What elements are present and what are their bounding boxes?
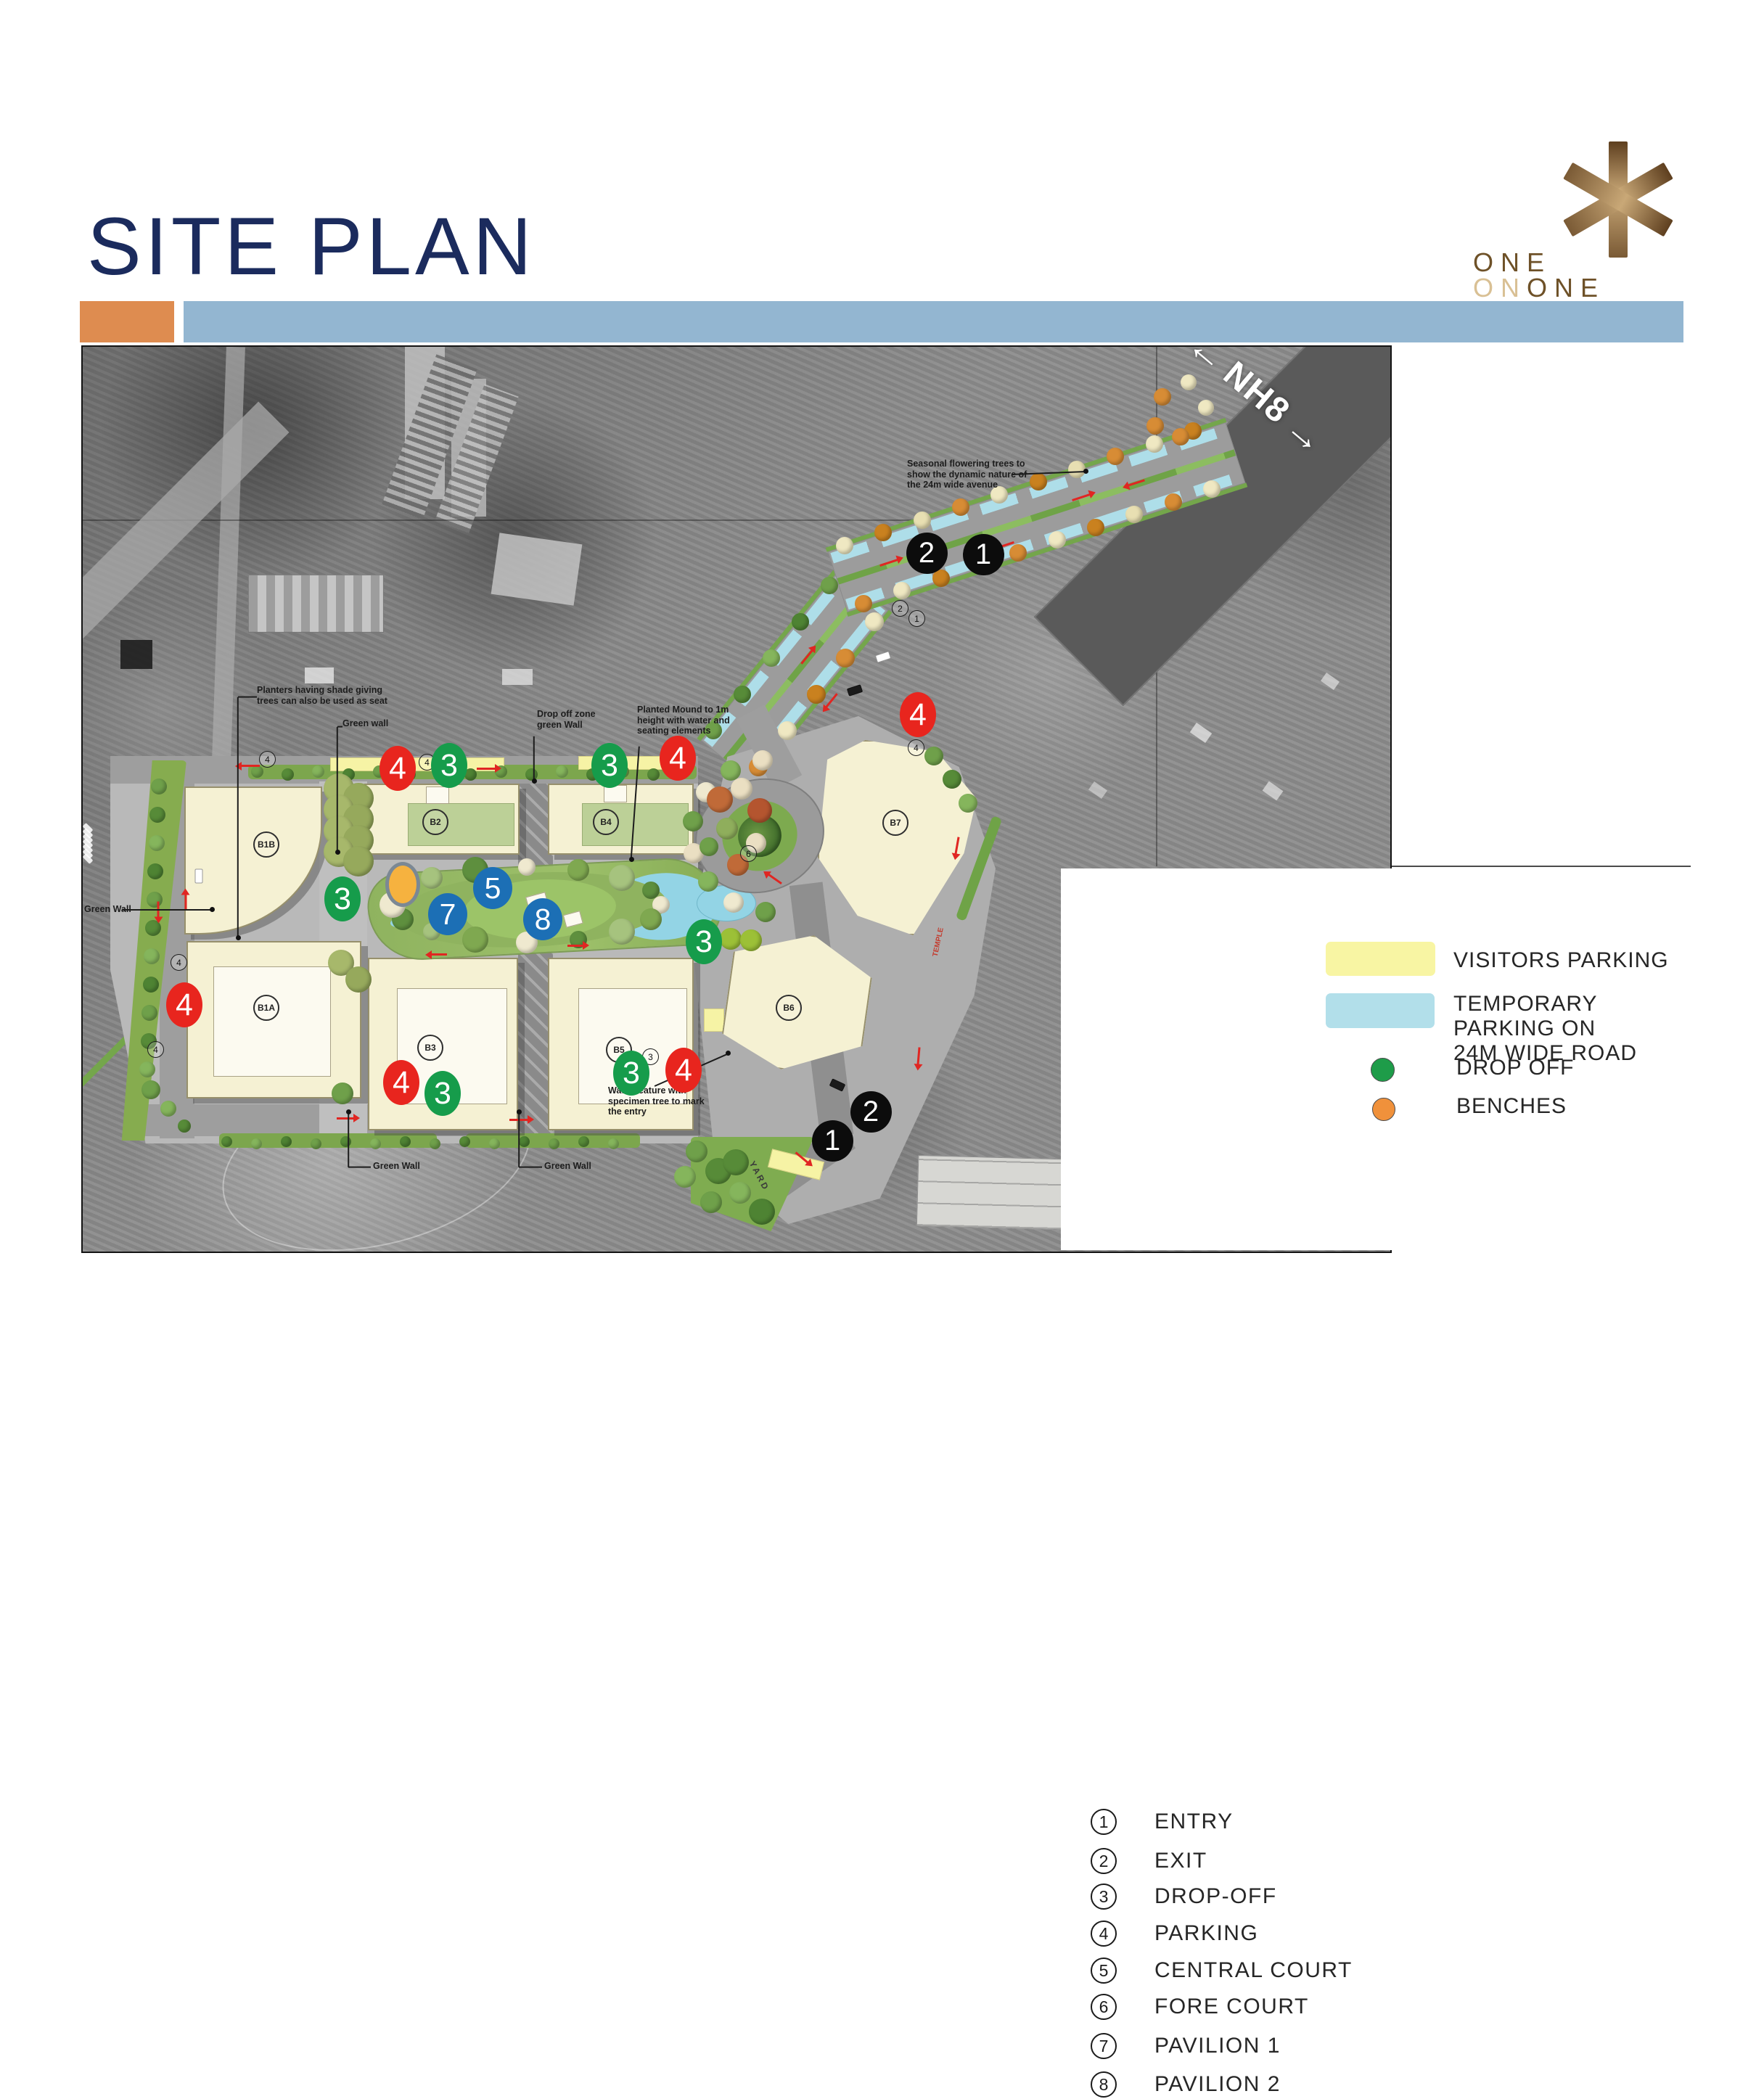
logo-word-onone: ONONE <box>1473 273 1605 303</box>
tree-icon <box>608 1138 619 1149</box>
bench-marker-icon <box>385 862 420 907</box>
direction-arrow-icon <box>477 768 496 770</box>
tree-icon <box>914 512 931 529</box>
tree-icon <box>1087 519 1104 536</box>
small-ref-4: 4 <box>147 1041 164 1058</box>
tree-icon <box>1146 417 1164 435</box>
building-label-B1B: B1B <box>253 831 279 858</box>
direction-arrow-icon <box>241 765 260 767</box>
small-ref-4: 4 <box>908 739 924 756</box>
map-marker-black-2: 2 <box>906 533 948 574</box>
building-B1A-roof <box>213 966 331 1077</box>
tree-icon <box>700 837 718 856</box>
tree-icon <box>549 1138 559 1149</box>
legend-item-entry: 1 ENTRY <box>1091 1807 1234 1836</box>
leader-line <box>237 697 239 937</box>
tree-icon <box>251 765 263 778</box>
legend-panel: 1 ENTRY 2 EXIT 3 DROP-OFF 4 PARKING 5 CE… <box>1061 868 1691 1250</box>
tree-icon <box>489 1138 500 1149</box>
tree-icon <box>160 1101 176 1117</box>
tree-icon <box>747 798 772 823</box>
map-marker-red-4: 4 <box>383 1060 419 1105</box>
tree-icon <box>647 768 660 781</box>
building-B2-roofbit <box>426 786 449 804</box>
tree-icon <box>151 779 167 794</box>
tree-icon <box>1068 461 1086 478</box>
legend-label-central-court: CENTRAL COURT <box>1154 1958 1353 1983</box>
tree-icon <box>1172 428 1189 445</box>
tree-icon <box>343 846 374 876</box>
leader-dot <box>346 1109 351 1114</box>
tree-icon <box>567 859 589 881</box>
map-annotation-green-wall-bottom-1: Green Wall <box>373 1161 442 1172</box>
temporary-parking-label: TEMPORARY PARKING ON 24M WIDE ROAD <box>1453 992 1691 1066</box>
legend-divider-line <box>1392 866 1691 867</box>
map-marker-green-3: 3 <box>613 1051 649 1096</box>
tree-icon <box>807 685 826 704</box>
tree-icon <box>749 1199 775 1225</box>
map-annotation-planted-mound: Planted Mound to 1m height with water an… <box>637 705 764 736</box>
tree-icon <box>723 1149 749 1175</box>
leader-line <box>348 1167 371 1168</box>
tree-icon <box>1154 388 1171 406</box>
tree-icon <box>578 1136 589 1147</box>
leader-line <box>533 736 535 780</box>
tree-icon <box>1049 531 1066 549</box>
legend-label-pavilion-1: PAVILION 1 <box>1154 2034 1281 2058</box>
building-label-B3: B3 <box>417 1035 443 1061</box>
building-label-B7: B7 <box>882 810 908 836</box>
direction-arrow-icon <box>567 945 583 947</box>
tree-icon <box>139 1061 155 1077</box>
tree-icon <box>855 595 872 612</box>
accent-bar-orange <box>80 301 174 342</box>
drop-off-dot-swatch <box>1371 1058 1395 1082</box>
legend-number-7: 7 <box>1091 2033 1117 2059</box>
map-marker-red-4: 4 <box>665 1048 702 1093</box>
tree-icon <box>792 613 809 630</box>
tree-icon <box>763 649 780 667</box>
direction-arrow-icon <box>431 953 447 956</box>
tree-icon <box>836 649 855 668</box>
temporary-parking-swatch <box>1326 993 1435 1028</box>
legend-item-fore-court: 6 FORE COURT <box>1091 1992 1309 2021</box>
legend-item-pavilion-1: 7 PAVILION 1 <box>1091 2032 1281 2061</box>
legend-item-pavilion-2: 8 PAVILION 2 <box>1091 2070 1281 2099</box>
tree-icon <box>755 902 776 922</box>
legend-item-central-court: 5 CENTRAL COURT <box>1091 1956 1353 1985</box>
photo-structure <box>502 669 533 685</box>
legend-label-drop-off: DROP-OFF <box>1154 1884 1277 1909</box>
tree-icon <box>924 747 943 765</box>
tree-icon <box>707 786 733 813</box>
tree-icon <box>370 1138 381 1149</box>
page-title: SITE PLAN <box>87 206 536 287</box>
map-marker-blue-8: 8 <box>523 898 562 940</box>
legend-label-pavilion-2: PAVILION 2 <box>1154 2072 1281 2097</box>
tree-icon <box>752 750 773 771</box>
small-ref-6: 6 <box>740 845 757 862</box>
direction-arrow-icon <box>337 1117 354 1120</box>
small-ref-2: 2 <box>892 600 908 617</box>
tree-icon <box>640 908 662 930</box>
legend-label-exit: EXIT <box>1154 1849 1207 1873</box>
legend-number-5: 5 <box>1091 1958 1117 1984</box>
leader-line <box>348 1114 349 1167</box>
tree-icon <box>282 768 294 781</box>
tree-icon <box>865 612 884 631</box>
tree-icon <box>720 928 742 950</box>
tree-icon <box>430 1138 440 1149</box>
tree-icon <box>674 1166 696 1188</box>
tree-icon <box>959 794 977 813</box>
map-annotation-green-wall-top: Green wall <box>342 718 411 729</box>
tree-icon <box>698 871 718 892</box>
tree-icon <box>178 1120 191 1133</box>
map-marker-black-1: 1 <box>963 534 1004 575</box>
tree-icon <box>1181 374 1197 390</box>
tree-icon <box>462 927 488 953</box>
tree-icon <box>642 882 660 899</box>
leader-dot <box>335 850 340 855</box>
tree-icon <box>943 770 961 789</box>
building-label-B6: B6 <box>776 995 802 1021</box>
building-label-B4: B4 <box>593 809 619 835</box>
tree-icon <box>281 1136 292 1147</box>
tree-icon <box>716 818 738 839</box>
map-marker-green-3: 3 <box>431 743 467 788</box>
tree-icon <box>519 1136 530 1147</box>
map-marker-red-4: 4 <box>660 736 696 781</box>
building-label-B1A: B1A <box>253 995 279 1021</box>
tree-icon <box>459 1136 470 1147</box>
small-ref-1: 1 <box>908 610 925 627</box>
map-annotation-planters-note: Planters having shade giving trees can a… <box>257 685 424 706</box>
small-ref-4: 4 <box>171 954 187 971</box>
map-annotation-seasonal-trees: Seasonal flowering trees to show the dyn… <box>907 459 1052 490</box>
leader-dot <box>210 907 215 912</box>
logo-word-one2: ONE <box>1527 273 1605 303</box>
tree-icon <box>556 765 568 778</box>
tree-icon <box>340 1136 351 1147</box>
tree-icon <box>311 1138 321 1149</box>
small-ref-4: 4 <box>259 751 276 768</box>
tree-icon <box>729 1182 751 1204</box>
tree-icon <box>734 686 751 703</box>
legend-item-drop-off: 3 DROP-OFF <box>1091 1882 1277 1911</box>
tree-icon <box>609 865 635 891</box>
leader-dot <box>236 935 241 940</box>
tree-icon <box>836 537 853 554</box>
tree-icon <box>686 1141 707 1162</box>
legend-number-8: 8 <box>1091 2071 1117 2098</box>
map-marker-red-4: 4 <box>166 982 202 1027</box>
tree-icon <box>312 765 324 778</box>
tree-icon <box>518 858 536 876</box>
tree-icon <box>778 721 797 740</box>
car-icon <box>195 869 203 884</box>
visitors-parking-label: VISITORS PARKING <box>1453 948 1669 973</box>
tree-icon <box>1203 480 1221 498</box>
map-marker-green-3: 3 <box>591 743 628 788</box>
legend-number-3: 3 <box>1091 1884 1117 1910</box>
tree-icon <box>1198 400 1214 416</box>
legend-number-4: 4 <box>1091 1921 1117 1947</box>
visitors-parking-strip <box>704 1009 724 1032</box>
tree-icon <box>731 778 752 800</box>
one-on-one-logo: ONE ONONE <box>1459 141 1698 330</box>
photo-structure <box>491 533 583 605</box>
tree-icon <box>700 1191 722 1213</box>
photo-structure <box>305 668 334 683</box>
building-label-B2: B2 <box>422 809 448 835</box>
legend-number-2: 2 <box>1091 1848 1117 1874</box>
tree-icon <box>251 1138 262 1149</box>
map-annotation-green-wall-bottom-2: Green Wall <box>544 1161 613 1172</box>
logo-word-on: ON <box>1473 273 1527 303</box>
tree-icon <box>740 929 762 951</box>
map-marker-green-3: 3 <box>686 919 722 964</box>
leader-dot <box>1083 469 1088 474</box>
tree-icon <box>149 835 165 851</box>
drop-off-label: DROP OFF <box>1456 1056 1574 1080</box>
legend-number-1: 1 <box>1091 1809 1117 1835</box>
tree-icon <box>723 892 744 913</box>
photo-structure <box>120 640 152 669</box>
benches-dot-swatch <box>1372 1098 1395 1121</box>
tree-icon <box>1165 493 1182 511</box>
direction-arrow-icon <box>185 895 187 911</box>
tree-icon <box>332 1083 353 1104</box>
map-marker-blue-7: 7 <box>428 893 467 935</box>
tree-icon <box>141 1080 160 1099</box>
legend-label-parking: PARKING <box>1154 1921 1258 1946</box>
tree-icon <box>821 577 838 594</box>
map-marker-red-4: 4 <box>900 692 936 737</box>
tree-icon <box>1009 544 1027 562</box>
tree-icon <box>400 1136 411 1147</box>
legend-number-6: 6 <box>1091 1994 1117 2020</box>
legend-label-entry: ENTRY <box>1154 1810 1234 1834</box>
tree-icon <box>345 966 372 993</box>
leader-line <box>337 726 342 728</box>
leader-line <box>519 1167 542 1168</box>
leader-dot <box>532 779 537 784</box>
tree-icon <box>1146 435 1163 453</box>
map-marker-black-1: 1 <box>812 1120 853 1162</box>
legend-label-fore-court: FORE COURT <box>1154 1995 1309 2019</box>
legend-item-parking: 4 PARKING <box>1091 1919 1258 1948</box>
tree-icon <box>143 977 159 993</box>
visitors-parking-swatch <box>1326 942 1435 976</box>
leader-dot <box>726 1051 731 1056</box>
leader-dot <box>517 1109 522 1114</box>
leader-dot <box>629 857 634 862</box>
map-marker-green-3: 3 <box>324 876 361 921</box>
map-marker-black-2: 2 <box>850 1091 892 1133</box>
legend-item-exit: 2 EXIT <box>1091 1847 1207 1876</box>
leader-line <box>337 727 338 851</box>
map-annotation-green-wall-left: Green Wall <box>84 904 153 915</box>
map-annotation-drop-off-zone: Drop off zone green Wall <box>537 709 620 730</box>
leader-line <box>238 697 257 698</box>
map-marker-blue-5: 5 <box>473 867 512 909</box>
tree-icon <box>221 1136 232 1147</box>
tree-icon <box>683 811 703 831</box>
map-marker-green-3: 3 <box>424 1071 461 1116</box>
benches-label: BENCHES <box>1456 1094 1567 1119</box>
tree-icon <box>609 919 635 945</box>
leader-line <box>518 1114 520 1167</box>
greenhouse-roof <box>248 575 384 633</box>
map-marker-red-4: 4 <box>380 746 416 791</box>
